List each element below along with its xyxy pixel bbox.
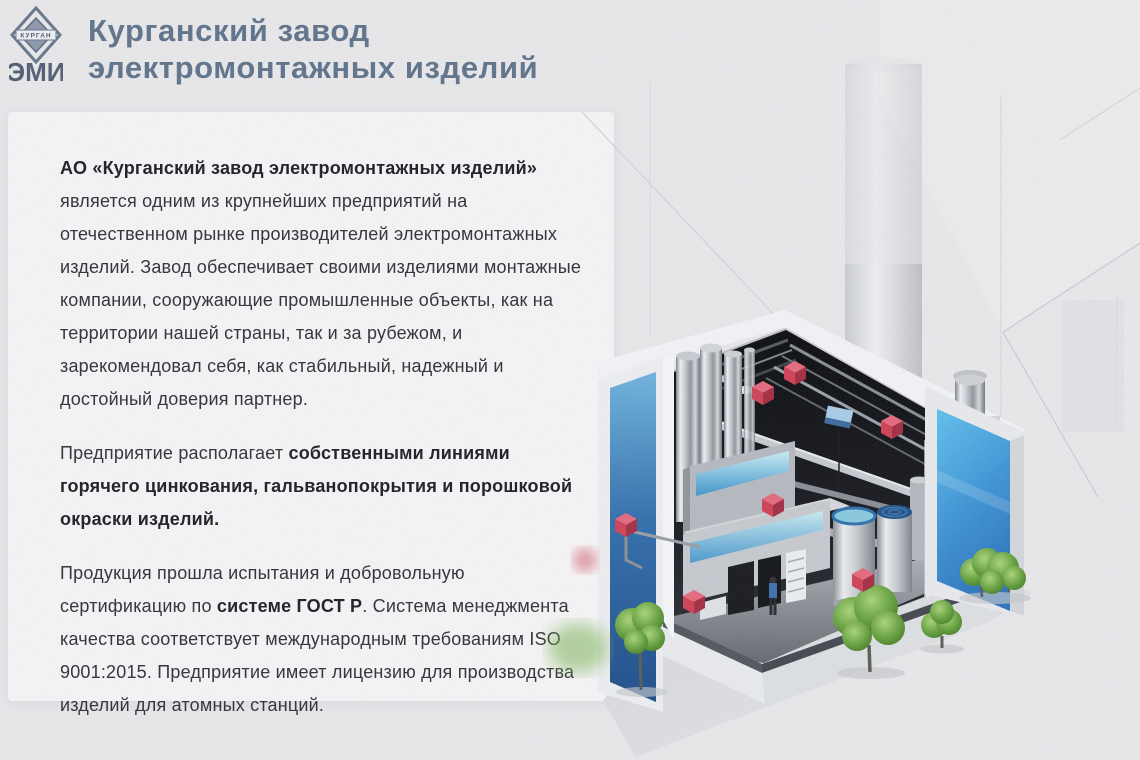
paragraph-company-lead: АО «Курганский завод электромонтажных из… [60, 158, 537, 178]
logo-banner-text: КУРГАН [20, 33, 51, 40]
company-logo-icon: КУРГАН ЭМИ [9, 5, 63, 85]
blurred-foliage-foreground [548, 623, 608, 673]
page: КУРГАН ЭМИ Курганский завод электромонта… [0, 0, 1140, 760]
vent-stack-far [1062, 300, 1124, 432]
blurred-hotspot-foreground [573, 548, 597, 572]
factory-building [598, 310, 1026, 712]
about-card-text: АО «Курганский завод электромонтажных из… [60, 152, 588, 743]
paragraph-cert-bold: системе ГОСТ Р [217, 596, 362, 616]
logo-letters: ЭМИ [9, 57, 63, 85]
paragraph-lines: Предприятие располагает собственными лин… [60, 437, 588, 536]
factory-illustration [540, 0, 1140, 760]
paragraph-cert: Продукция прошла испытания и добровольну… [60, 557, 588, 722]
paragraph-company-body: является одним из крупнейших предприятий… [60, 191, 581, 409]
chimney-stack [845, 57, 922, 394]
paragraph-company: АО «Курганский завод электромонтажных из… [60, 152, 588, 416]
about-card: АО «Курганский завод электромонтажных из… [8, 112, 614, 701]
paragraph-lines-lead: Предприятие располагает [60, 443, 288, 463]
